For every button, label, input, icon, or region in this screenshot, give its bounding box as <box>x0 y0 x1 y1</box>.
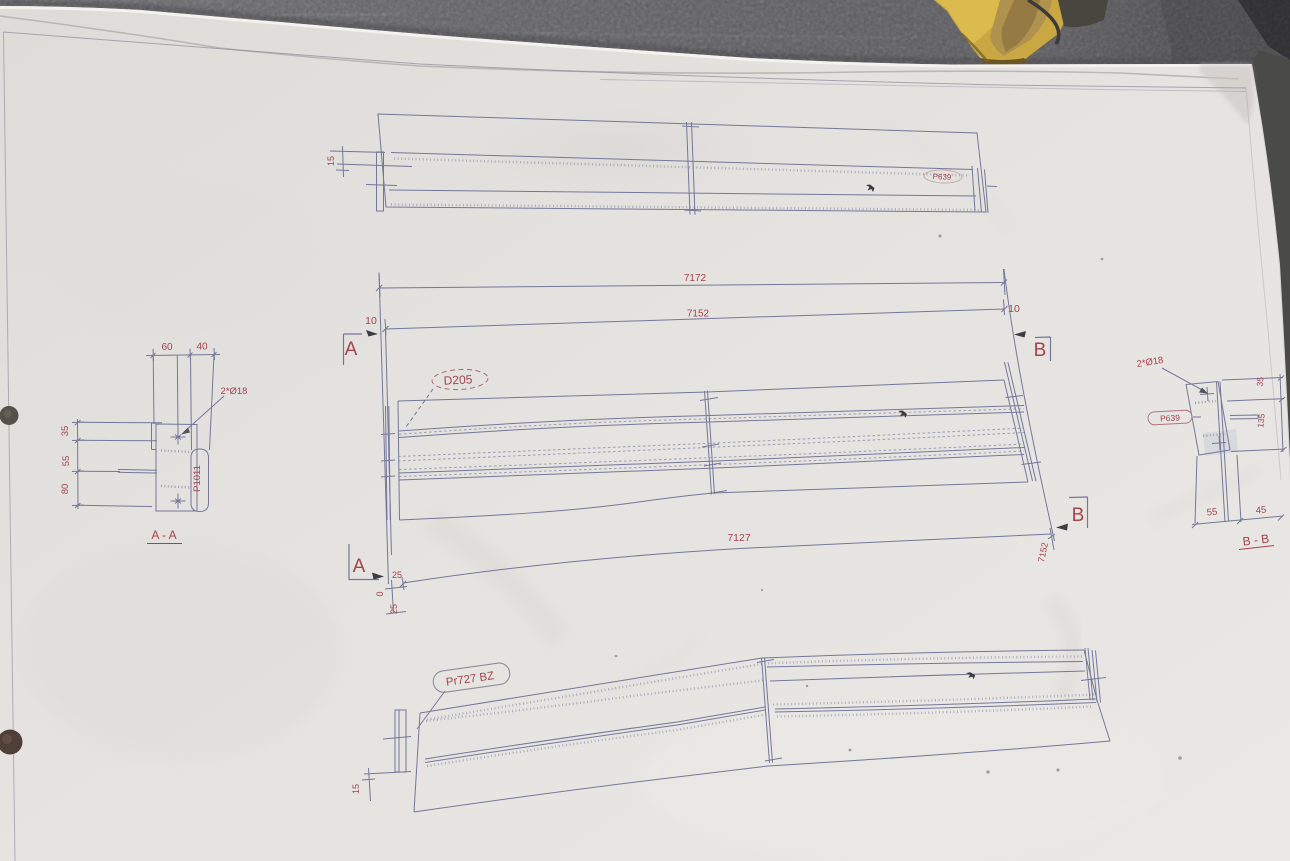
svg-text:B: B <box>1034 340 1047 361</box>
svg-text:80: 80 <box>60 484 71 495</box>
svg-text:15: 15 <box>326 156 336 166</box>
svg-text:135: 135 <box>1255 413 1266 428</box>
svg-text:15: 15 <box>351 784 361 794</box>
svg-text:10: 10 <box>365 315 377 327</box>
svg-text:2*Ø18: 2*Ø18 <box>221 386 248 397</box>
svg-text:10: 10 <box>1008 303 1020 315</box>
svg-text:45: 45 <box>1255 505 1266 517</box>
svg-text:25: 25 <box>389 604 399 614</box>
svg-text:B: B <box>1072 505 1085 526</box>
svg-text:7127: 7127 <box>727 532 751 544</box>
svg-text:40: 40 <box>196 342 208 353</box>
svg-text:25: 25 <box>392 570 402 580</box>
svg-text:7172: 7172 <box>684 273 707 284</box>
svg-text:A: A <box>353 556 366 577</box>
svg-text:D205: D205 <box>443 372 473 387</box>
svg-text:55: 55 <box>61 456 72 467</box>
svg-text:7152: 7152 <box>687 309 710 320</box>
svg-text:0: 0 <box>375 591 385 596</box>
svg-text:P1011: P1011 <box>192 465 203 492</box>
svg-text:A: A <box>345 339 358 360</box>
svg-text:55: 55 <box>1206 507 1217 519</box>
svg-text:35: 35 <box>60 426 71 437</box>
svg-text:A - A: A - A <box>151 528 176 542</box>
svg-text:60: 60 <box>161 342 173 353</box>
svg-text:P639: P639 <box>1160 412 1181 423</box>
svg-text:P639: P639 <box>932 172 952 182</box>
svg-text:35: 35 <box>1255 376 1266 387</box>
